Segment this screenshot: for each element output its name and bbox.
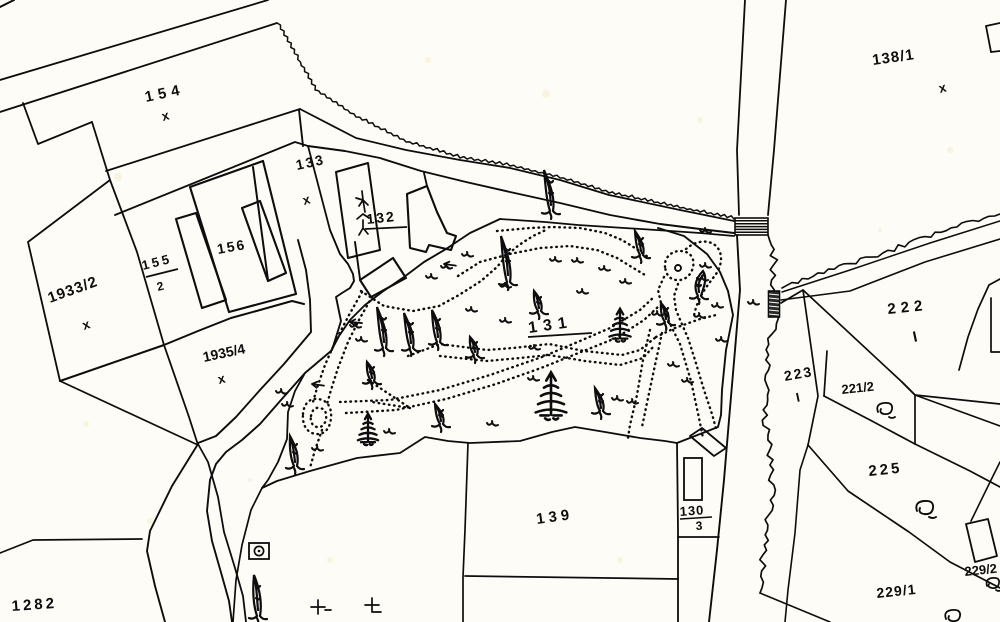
svg-text:132: 132 bbox=[366, 208, 397, 227]
svg-text:225: 225 bbox=[868, 460, 904, 480]
svg-text:130: 130 bbox=[679, 502, 705, 519]
svg-text:3: 3 bbox=[695, 518, 706, 533]
svg-text:1282: 1282 bbox=[11, 595, 57, 615]
